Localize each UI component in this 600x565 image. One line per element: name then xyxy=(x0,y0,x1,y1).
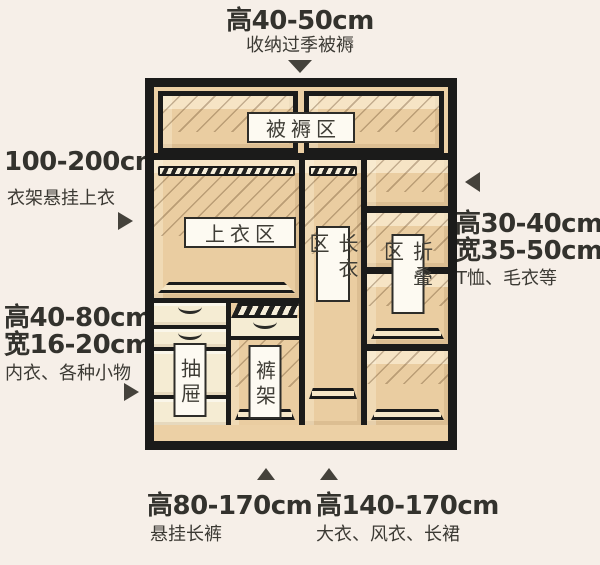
arrow-left-icon xyxy=(465,172,480,192)
arrow-right-icon xyxy=(124,383,139,401)
left-upper-description: 衣架悬挂上衣 xyxy=(7,184,115,210)
hatching xyxy=(367,160,448,192)
horizontal-divider xyxy=(154,153,448,160)
hatching xyxy=(367,351,448,384)
shelf-floor xyxy=(371,328,444,339)
folding-column: 折叠区 xyxy=(367,160,448,425)
pants-rack-unit: 裤架 xyxy=(231,303,299,425)
hanging-rod xyxy=(309,166,357,176)
folding-compartment xyxy=(367,351,448,425)
arrow-up-icon xyxy=(257,468,275,480)
left-upper-dimension: 100-200cm xyxy=(4,147,161,177)
folding-zone-label: 折叠区 xyxy=(391,234,424,314)
pants-rack-label: 裤架 xyxy=(249,345,282,419)
shelf-floor xyxy=(371,409,444,420)
left-lower-description: 内衣、各种小物 xyxy=(5,359,131,385)
folding-compartment xyxy=(367,160,448,206)
bottom-left-description: 悬挂长裤 xyxy=(150,520,222,546)
shelf-floor xyxy=(309,388,357,399)
left-lower-dimension-width: 宽16-20cm xyxy=(4,324,152,361)
hanging-rod xyxy=(158,166,295,176)
bottom-right-dimension: 高140-170cm xyxy=(316,485,499,522)
tops-zone-label: 上衣区 xyxy=(184,217,296,248)
pants-rack-rails xyxy=(231,303,299,318)
tops-compartment: 上衣区 xyxy=(154,160,299,298)
drawer-handle-icon xyxy=(178,306,202,314)
shelf-floor xyxy=(158,282,295,293)
arrow-down-icon xyxy=(288,60,312,73)
arrow-up-icon xyxy=(320,468,338,480)
right-dimension-width: 宽35-50cm xyxy=(455,230,600,267)
long-clothes-zone-label: 长衣区 xyxy=(316,226,350,302)
bedding-shelf-row: 被褥区 xyxy=(158,91,444,153)
main-section: 上衣区 抽屉 xyxy=(154,160,448,425)
lower-left-row: 抽屉 裤架 xyxy=(154,303,299,425)
wardrobe-dimensions-infographic: 高40-50cm 收纳过季被褥 100-200cm 衣架悬挂上衣 高40-80c… xyxy=(0,0,600,565)
long-clothes-column: 长衣区 xyxy=(305,160,361,425)
drawer-handle-icon xyxy=(178,332,202,340)
pants-rack-front xyxy=(231,318,299,340)
bottom-right-description: 大衣、风衣、长裙 xyxy=(316,520,460,546)
bedding-zone-label: 被褥区 xyxy=(247,112,355,143)
right-description: T恤、毛衣等 xyxy=(456,264,557,290)
bottom-left-dimension: 高80-170cm xyxy=(147,485,312,522)
wardrobe-frame: 被褥区 上衣区 xyxy=(145,78,457,450)
drawer xyxy=(154,303,226,325)
drawer-label: 抽屉 xyxy=(174,343,207,417)
wardrobe-interior: 被褥区 上衣区 xyxy=(154,87,448,441)
wardrobe-base xyxy=(154,425,448,437)
top-description: 收纳过季被褥 xyxy=(180,31,420,57)
drawer-stack: 抽屉 xyxy=(154,303,226,425)
arrow-right-icon xyxy=(118,212,133,230)
drawer-handle-icon xyxy=(253,321,277,329)
left-column: 上衣区 抽屉 xyxy=(154,160,299,425)
